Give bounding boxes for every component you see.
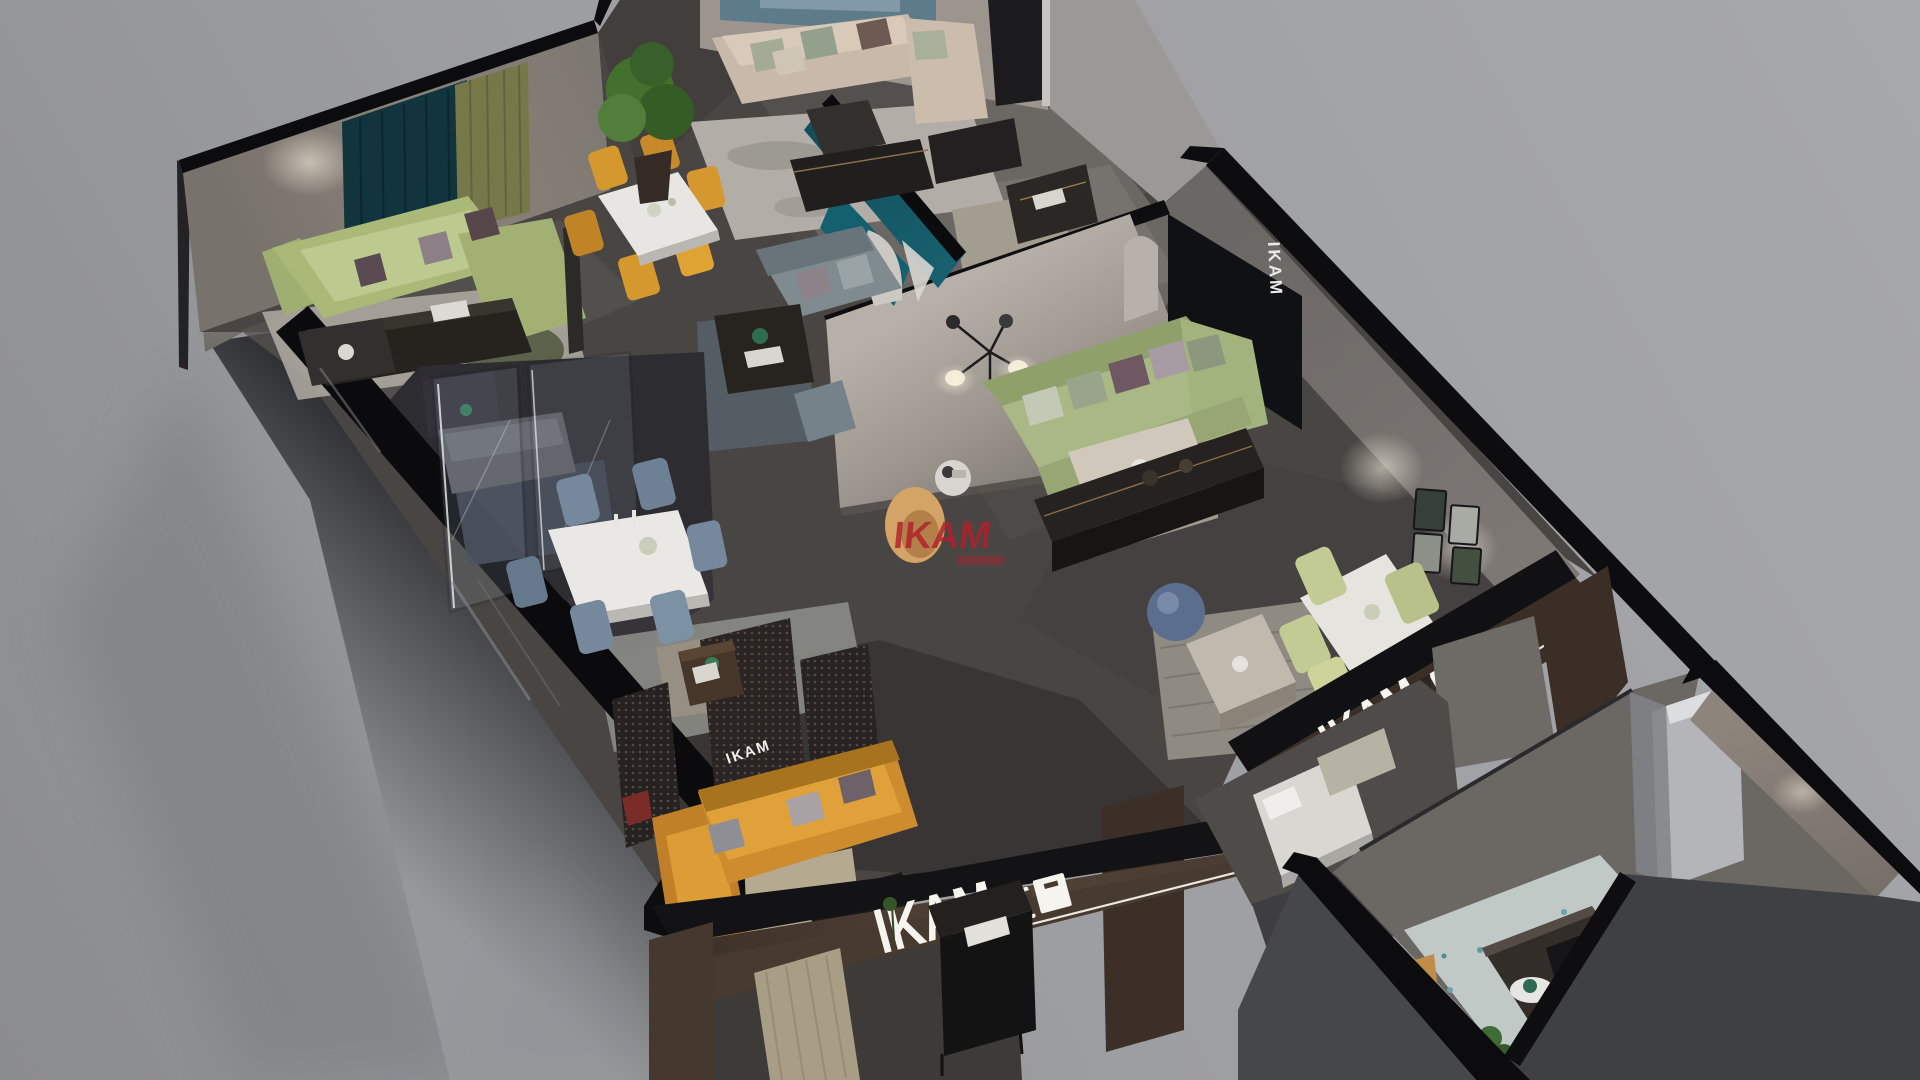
svg-text:IKAM: IKAM: [891, 515, 992, 557]
svg-text:IKAM: IKAM: [1264, 241, 1286, 297]
